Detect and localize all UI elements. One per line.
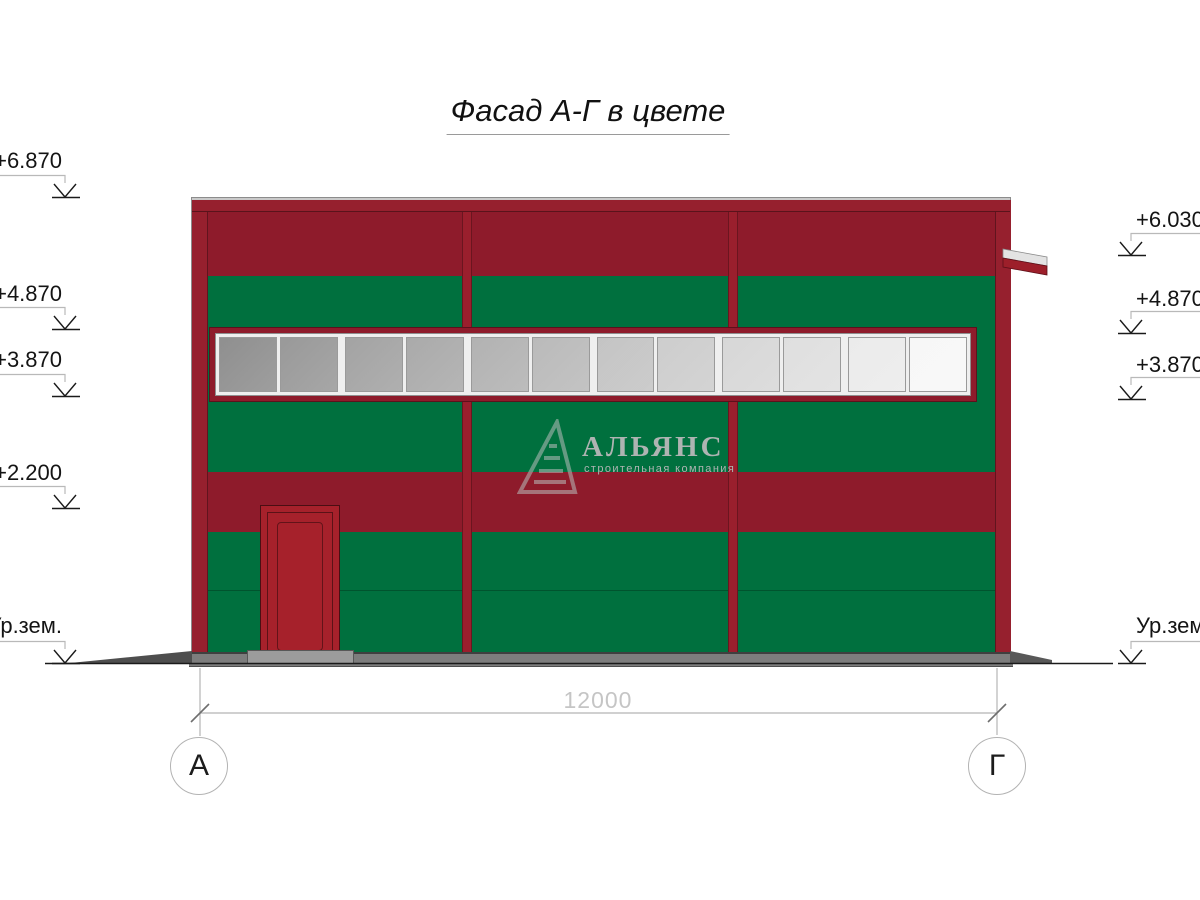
facade-drawing-page: { "title": "Фасад А-Г в цвете", "logo": … [0, 0, 1200, 900]
green-band-lower-s3 [736, 532, 995, 657]
door-threshold [247, 650, 354, 664]
page-title: Фасад А-Г в цвете [447, 93, 730, 135]
elevation-label-3870-right: +3.870 [1136, 352, 1200, 378]
ground-wedge-left [70, 651, 192, 663]
elevation-label-ground-right: Ур.зем. [1136, 613, 1200, 639]
elevation-label-3870-left: +3.870 [0, 347, 62, 373]
window-pane [783, 337, 841, 392]
elevation-marker-ground-right [1118, 642, 1200, 664]
parapet-cap [192, 200, 1010, 212]
elevation-marker-4870-right [1118, 312, 1200, 334]
elevation-marker-2200 [0, 487, 80, 509]
window-pane [597, 337, 655, 392]
logo-company-name: АЛЬЯНС [582, 431, 725, 464]
elevation-label-4870-right: +4.870 [1136, 286, 1200, 312]
facade-divider-2 [728, 211, 738, 657]
window-pane [909, 337, 967, 392]
window-pane [471, 337, 529, 392]
corner-pilaster-left [192, 200, 208, 657]
axis-letter-g: Г [989, 749, 1005, 783]
dimension-value: 12000 [548, 687, 648, 714]
elevation-marker-3870-left [0, 375, 80, 397]
door-frame [267, 512, 333, 658]
axis-bubble-g: Г [968, 737, 1026, 795]
window-pane [280, 337, 338, 392]
elevation-marker-4870-left [0, 308, 80, 330]
corner-pilaster-right [995, 200, 1011, 657]
pyramid-icon [517, 419, 579, 495]
window-pane [657, 337, 715, 392]
ribbon-window [209, 327, 977, 402]
facade-divider-1 [462, 211, 472, 657]
elevation-marker-6870 [0, 176, 80, 198]
elevation-label-4870-left: +4.870 [0, 281, 62, 307]
window-pane [848, 337, 906, 392]
elevation-marker-6030 [1118, 234, 1200, 256]
window-frame [215, 333, 971, 396]
window-panes [219, 337, 967, 392]
logo-tagline: строительная компания [584, 463, 735, 475]
window-pane [532, 337, 590, 392]
elevation-marker-ground-left [0, 642, 80, 664]
window-pane [345, 337, 403, 392]
axis-letter-a: А [189, 749, 209, 783]
elevation-label-2200: +2.200 [0, 460, 62, 486]
green-band-lower-s2 [470, 532, 728, 657]
ground-wedge-right [1010, 651, 1052, 663]
window-pane [219, 337, 277, 392]
elevation-label-6030: +6.030 [1136, 207, 1200, 233]
elevation-label-ground-left: Ур.зем. [0, 613, 62, 639]
door-panel [277, 522, 323, 651]
entrance-door [260, 505, 340, 659]
axis-bubble-a: А [170, 737, 228, 795]
elevation-label-6870: +6.870 [0, 148, 62, 174]
building-facade [192, 198, 1010, 657]
window-pane [722, 337, 780, 392]
elevation-marker-3870-right [1118, 378, 1200, 400]
window-pane [406, 337, 464, 392]
